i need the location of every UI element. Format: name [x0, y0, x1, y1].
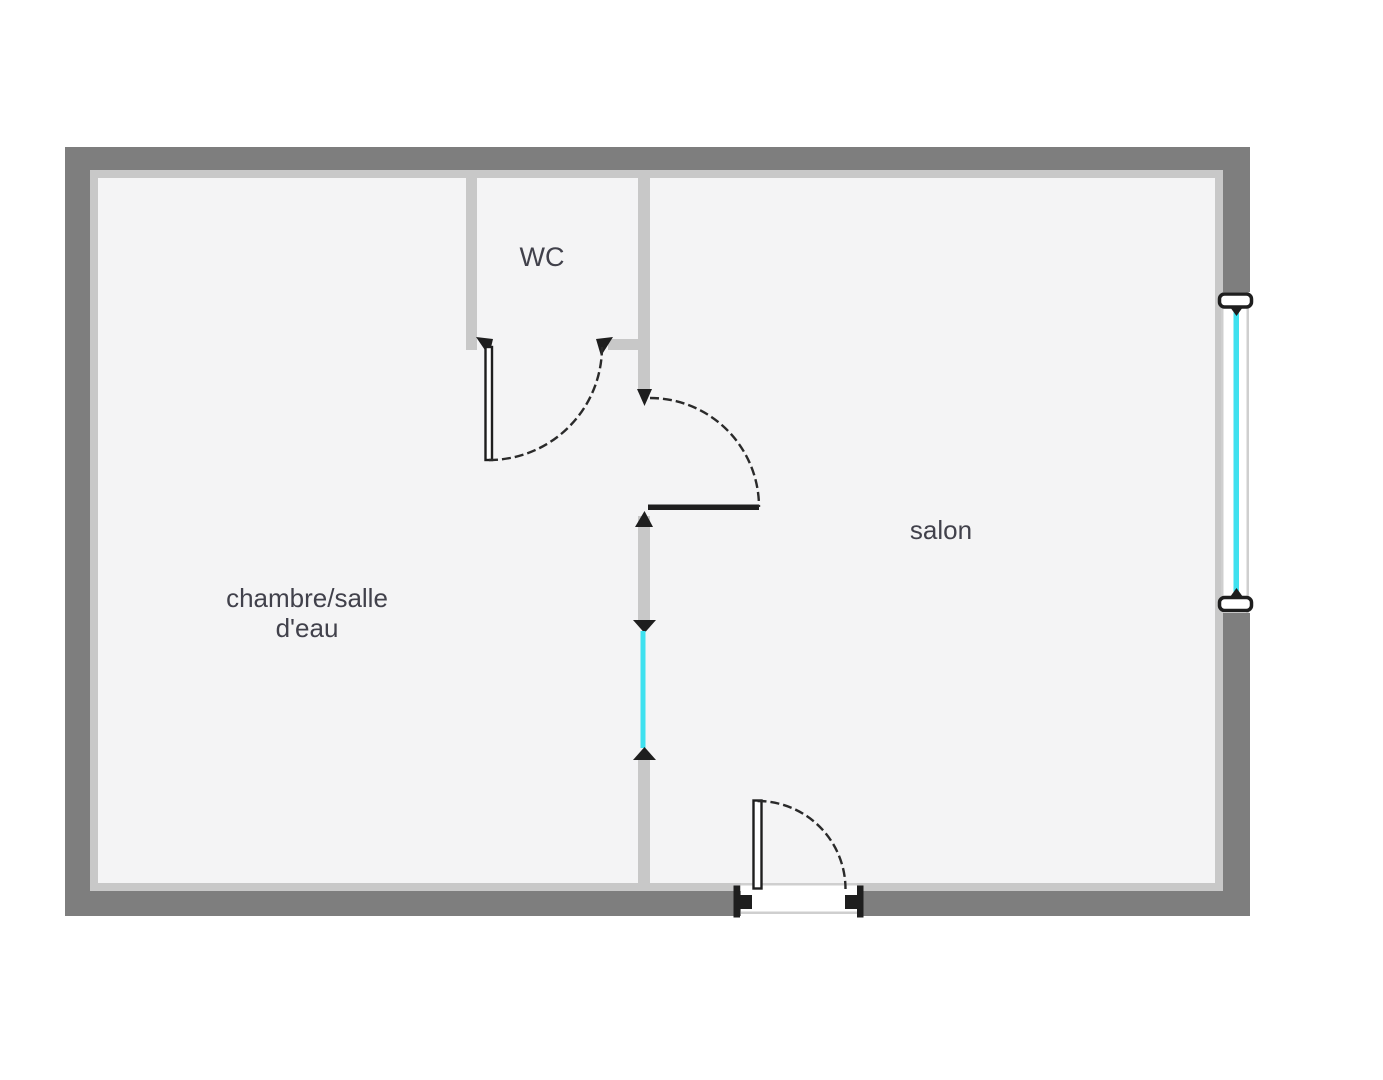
building-shell — [65, 147, 1250, 916]
chambre-label-line2: d'eau — [276, 613, 339, 643]
right-wall-window — [1220, 292, 1252, 613]
entrance-door-leaf — [754, 801, 762, 889]
mid-wall-lower — [638, 760, 650, 883]
wc-right-wall — [638, 178, 650, 390]
entrance-right-jamb-stop — [845, 895, 857, 909]
salon-door-leaf — [648, 505, 759, 511]
entrance-left-jamb-stop — [740, 895, 752, 909]
window-edge-inner — [1221, 292, 1224, 613]
window-edge-outer — [1247, 292, 1250, 613]
window-glass-line — [641, 631, 646, 748]
entrance-right-jamb — [857, 886, 864, 918]
wc-door-stub-wall — [608, 339, 638, 350]
wc-door-leaf — [486, 347, 493, 460]
window-glass-line — [1234, 312, 1240, 592]
floor-plan: WC salon chambre/salle d'eau — [0, 0, 1383, 1080]
salon-label: salon — [910, 515, 972, 545]
wc-label: WC — [520, 242, 565, 272]
mid-wall-upper — [638, 516, 650, 620]
entrance-left-jamb — [734, 886, 741, 918]
floor-plan-drawing: WC salon chambre/salle d'eau — [0, 0, 1383, 1080]
window-cap-bottom — [1220, 598, 1252, 611]
window-cap-top — [1220, 294, 1252, 307]
floor-area — [98, 178, 1215, 883]
wc-left-wall — [466, 178, 477, 350]
chambre-label-line1: chambre/salle — [226, 583, 388, 613]
entrance-threshold-bottom — [741, 912, 857, 915]
